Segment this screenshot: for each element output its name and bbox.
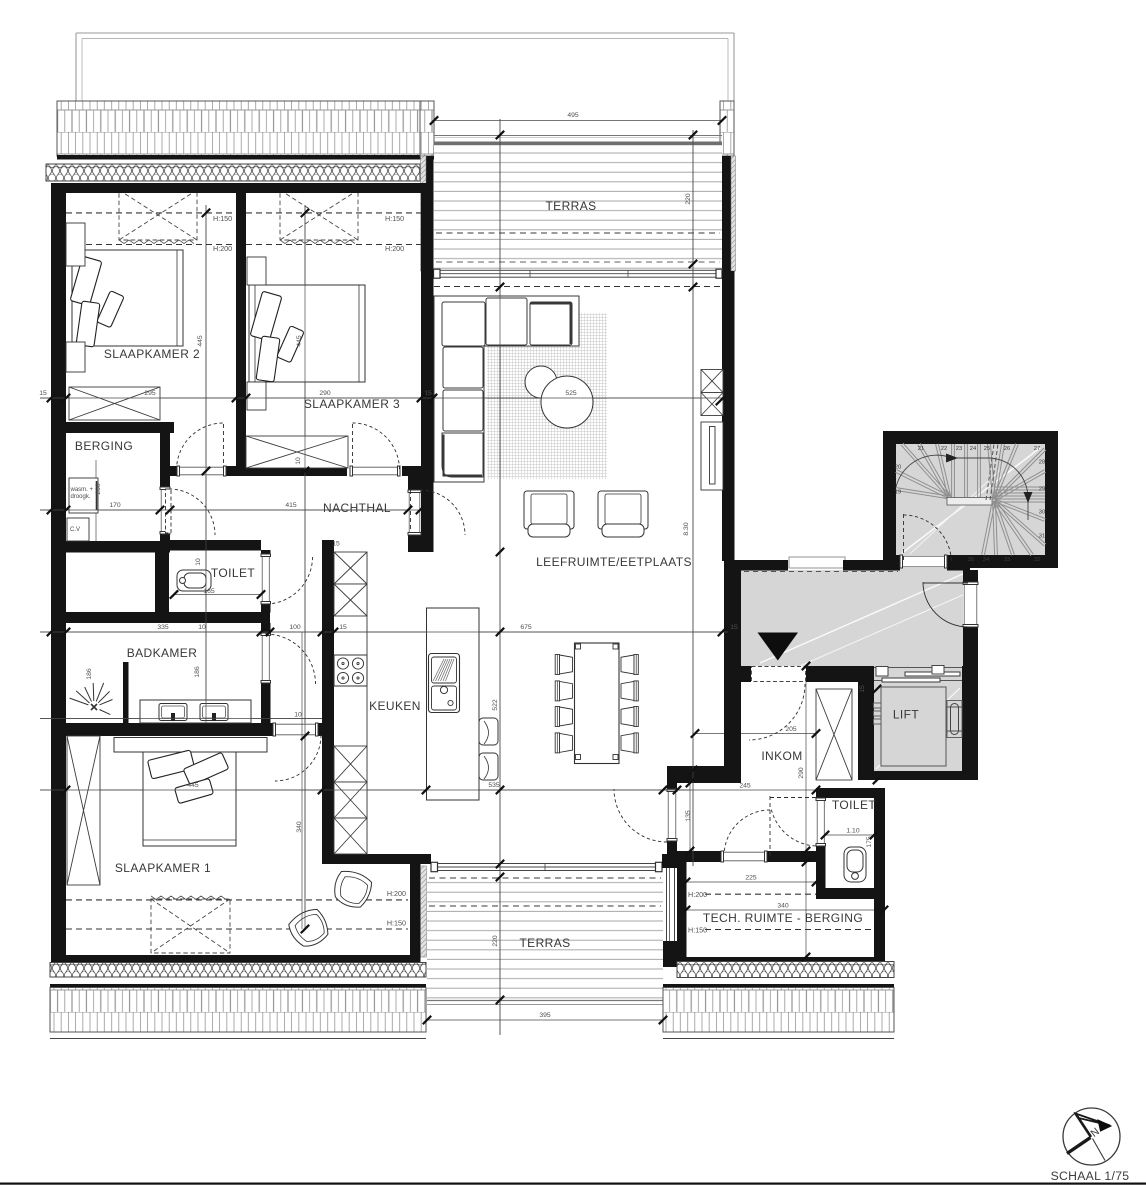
svg-text:KEUKEN: KEUKEN xyxy=(369,699,421,713)
svg-text:droogk.: droogk. xyxy=(71,494,91,500)
svg-text:BERGING: BERGING xyxy=(75,439,133,453)
svg-text:15: 15 xyxy=(339,624,347,631)
svg-text:525: 525 xyxy=(565,390,577,397)
svg-text:295: 295 xyxy=(144,390,156,397)
svg-text:186: 186 xyxy=(194,666,201,678)
svg-text:340: 340 xyxy=(777,903,789,910)
svg-text:C.V: C.V xyxy=(70,527,80,533)
svg-text:BADKAMER: BADKAMER xyxy=(127,646,198,660)
svg-text:15: 15 xyxy=(424,390,432,397)
svg-text:TERRAS: TERRAS xyxy=(545,199,596,213)
svg-text:27: 27 xyxy=(1034,446,1040,452)
svg-text:205: 205 xyxy=(785,726,797,733)
svg-text:SLAAPKAMER 2: SLAAPKAMER 2 xyxy=(104,347,200,361)
svg-text:H:200: H:200 xyxy=(387,889,406,898)
svg-text:1.10: 1.10 xyxy=(846,828,859,835)
svg-text:H:150: H:150 xyxy=(213,214,232,223)
svg-text:H:200: H:200 xyxy=(385,244,404,253)
svg-text:290: 290 xyxy=(319,390,331,397)
svg-text:10: 10 xyxy=(294,712,302,719)
svg-text:445: 445 xyxy=(197,335,204,347)
svg-text:20: 20 xyxy=(895,465,901,471)
svg-text:31: 31 xyxy=(1039,534,1045,540)
svg-text:340: 340 xyxy=(296,821,303,833)
svg-text:165: 165 xyxy=(203,588,215,595)
svg-text:SLAAPKAMER 3: SLAAPKAMER 3 xyxy=(304,397,400,411)
svg-text:10: 10 xyxy=(198,624,206,631)
svg-text:19: 19 xyxy=(895,490,901,496)
svg-text:wasm. +: wasm. + xyxy=(70,487,94,493)
svg-text:TECH. RUIMTE - BERGING: TECH. RUIMTE - BERGING xyxy=(703,911,863,925)
svg-text:SCHAAL 1/75: SCHAAL 1/75 xyxy=(1051,1169,1130,1183)
svg-text:29: 29 xyxy=(1039,487,1045,493)
svg-text:675: 675 xyxy=(520,624,532,631)
svg-text:TERRAS: TERRAS xyxy=(519,936,570,950)
svg-text:15: 15 xyxy=(730,624,738,631)
svg-text:LIFT: LIFT xyxy=(893,708,920,722)
svg-text:415: 415 xyxy=(285,502,297,509)
svg-text:170: 170 xyxy=(109,502,121,509)
svg-text:445: 445 xyxy=(187,782,199,789)
svg-text:SLAAPKAMER 1: SLAAPKAMER 1 xyxy=(115,861,211,875)
svg-text:H:200: H:200 xyxy=(213,244,232,253)
svg-text:H:150: H:150 xyxy=(385,214,404,223)
svg-text:INKOM: INKOM xyxy=(761,749,802,763)
svg-text:15: 15 xyxy=(39,390,47,397)
svg-text:10: 10 xyxy=(295,457,302,465)
svg-text:35: 35 xyxy=(968,557,974,563)
svg-text:445: 445 xyxy=(296,335,303,347)
svg-text:335: 335 xyxy=(157,624,169,631)
svg-text:TOILET: TOILET xyxy=(832,798,876,812)
svg-text:24: 24 xyxy=(970,446,977,452)
svg-text:15: 15 xyxy=(332,541,340,548)
svg-text:200: 200 xyxy=(95,483,102,495)
svg-text:220: 220 xyxy=(492,935,499,947)
svg-text:535: 535 xyxy=(488,782,500,789)
svg-text:135: 135 xyxy=(685,810,692,822)
svg-text:10: 10 xyxy=(195,558,202,566)
svg-text:395: 395 xyxy=(539,1012,551,1019)
svg-text:15: 15 xyxy=(859,685,866,693)
svg-text:23: 23 xyxy=(956,446,962,452)
svg-text:186: 186 xyxy=(86,668,93,680)
svg-text:26: 26 xyxy=(1004,446,1010,452)
svg-text:NACHTHAL: NACHTHAL xyxy=(323,501,391,515)
svg-text:H:150: H:150 xyxy=(688,926,707,935)
svg-text:H:150: H:150 xyxy=(387,919,406,928)
svg-text:495: 495 xyxy=(567,112,579,119)
svg-text:220: 220 xyxy=(685,193,692,205)
svg-text:TOILET: TOILET xyxy=(211,566,255,580)
svg-text:33: 33 xyxy=(1004,557,1010,563)
svg-text:28: 28 xyxy=(1039,460,1045,466)
svg-text:22: 22 xyxy=(941,446,947,452)
svg-text:32: 32 xyxy=(1034,557,1040,563)
svg-text:34: 34 xyxy=(983,557,990,563)
svg-text:8.30: 8.30 xyxy=(683,522,690,535)
svg-text:H:200: H:200 xyxy=(688,890,707,899)
svg-text:LEEFRUIMTE/EETPLAATS: LEEFRUIMTE/EETPLAATS xyxy=(536,555,692,569)
svg-text:290: 290 xyxy=(798,767,805,779)
svg-text:100: 100 xyxy=(289,624,301,631)
svg-text:225: 225 xyxy=(745,875,757,882)
svg-text:522: 522 xyxy=(492,699,499,711)
svg-text:25: 25 xyxy=(984,446,990,452)
svg-text:30: 30 xyxy=(1039,510,1045,516)
svg-text:245: 245 xyxy=(739,783,751,790)
svg-text:21: 21 xyxy=(918,446,924,452)
